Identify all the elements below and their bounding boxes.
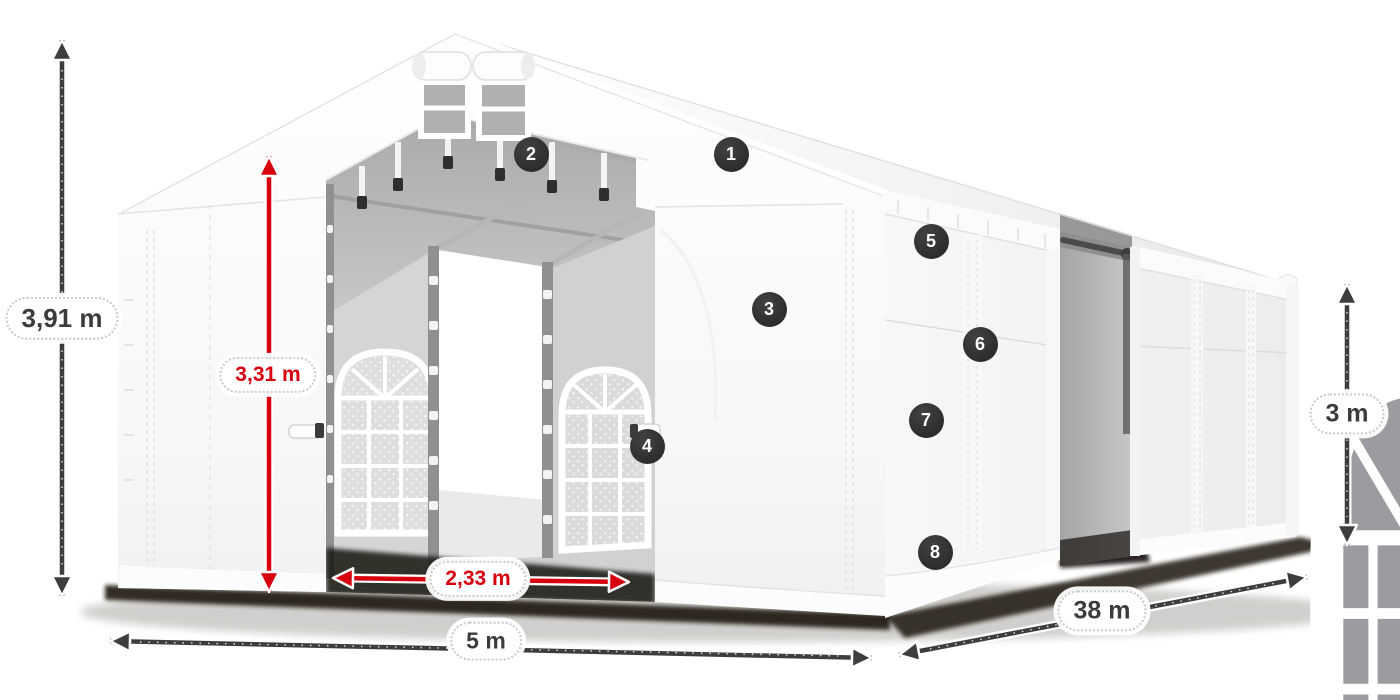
callout-badge-2: 2 [514,137,549,172]
callout-badge-7: 7 [909,403,944,438]
callout-badge-4: 4 [630,429,665,464]
dimension-label-side-height: 3 m [1309,393,1384,434]
callout-badge-3: 3 [752,292,787,327]
callout-badge-8: 8 [918,535,953,570]
tent-illustration [0,0,1400,700]
interior-window-right [562,370,648,550]
dimension-label-length: 38 m [1058,590,1147,631]
dimension-label-width: 5 m [450,622,522,661]
side-wall-open-section [1060,231,1140,566]
interior-window-left [338,352,432,533]
dimension-label-entrance-width: 2,33 m [429,561,526,597]
tent-dimension-diagram: 3,91 m 3,31 m 2,33 m 5 m 38 m 3 m 1 2 3 … [0,0,1400,700]
dimension-label-entrance-height: 3,31 m [219,357,316,393]
callout-badge-1: 1 [714,137,749,172]
callout-badge-6: 6 [963,327,998,362]
callout-badge-5: 5 [914,224,949,259]
entrance-interior [320,100,665,610]
vent-roll-left [412,52,471,80]
dimension-label-total-height: 3,91 m [6,297,119,340]
vent-roll-right [473,52,535,80]
